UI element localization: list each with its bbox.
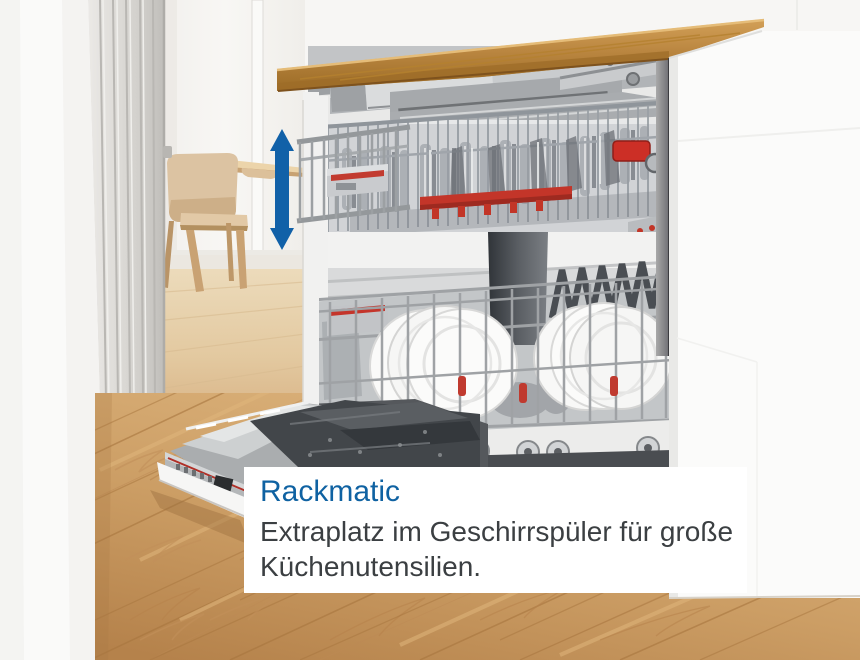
- svg-text:Rackmatic: Rackmatic: [260, 475, 400, 508]
- svg-text:Küchenutensilien.: Küchenutensilien.: [260, 551, 481, 582]
- svg-text:Extraplatz im Geschirrspüler f: Extraplatz im Geschirrspüler für große: [260, 516, 733, 547]
